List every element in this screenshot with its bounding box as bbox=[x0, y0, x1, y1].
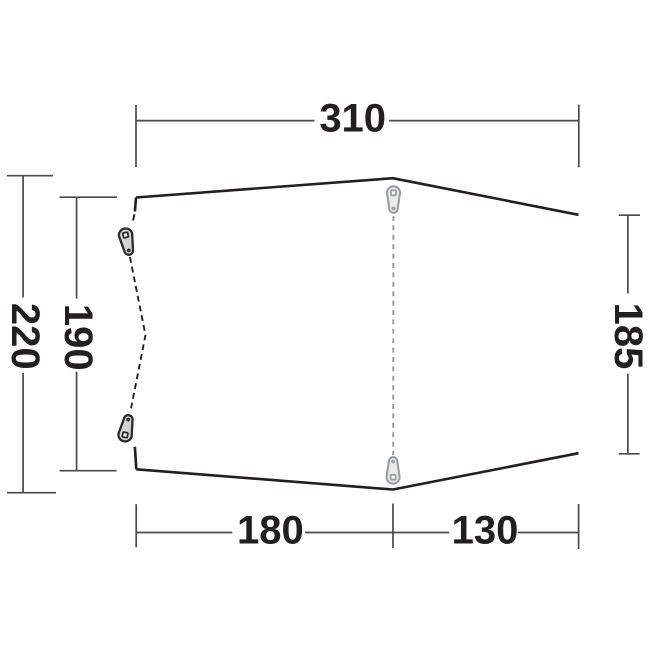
svg-text:185: 185 bbox=[606, 303, 650, 370]
svg-text:310: 310 bbox=[319, 96, 386, 140]
svg-text:220: 220 bbox=[3, 303, 47, 370]
svg-text:190: 190 bbox=[56, 304, 100, 371]
svg-text:130: 130 bbox=[452, 509, 519, 553]
svg-text:180: 180 bbox=[237, 508, 304, 552]
